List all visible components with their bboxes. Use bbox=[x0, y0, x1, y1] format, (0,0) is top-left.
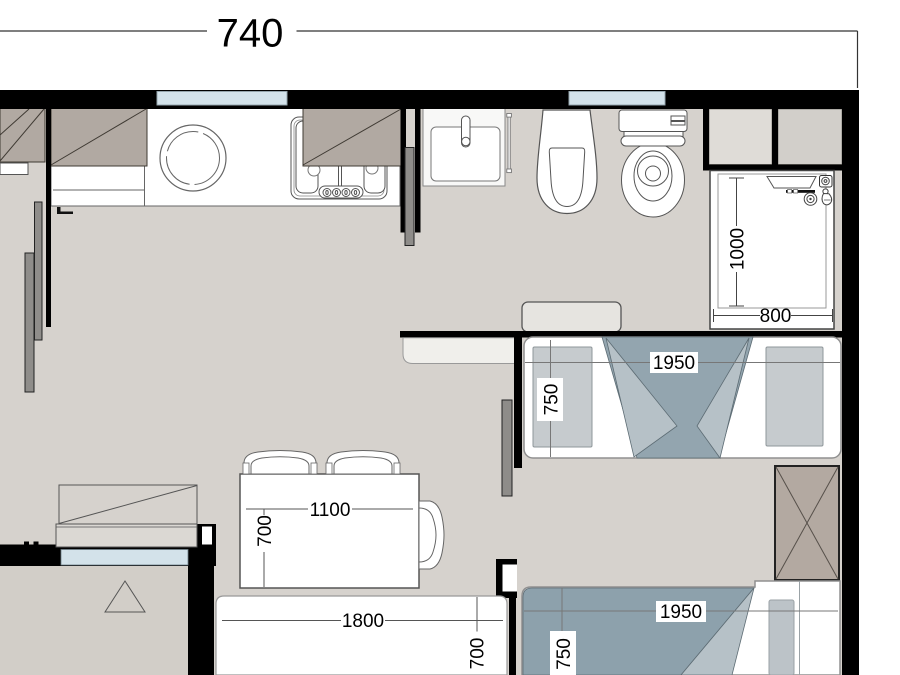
svg-text:1950: 1950 bbox=[653, 353, 695, 374]
svg-text:1100: 1100 bbox=[310, 500, 351, 521]
svg-text:1800: 1800 bbox=[342, 611, 384, 632]
svg-text:740: 740 bbox=[217, 12, 284, 56]
svg-text:1950: 1950 bbox=[660, 602, 702, 623]
svg-text:700: 700 bbox=[255, 515, 276, 547]
svg-text:1000: 1000 bbox=[728, 228, 749, 270]
svg-text:700: 700 bbox=[468, 638, 489, 670]
svg-text:750: 750 bbox=[542, 384, 563, 416]
svg-text:750: 750 bbox=[554, 638, 575, 670]
svg-text:800: 800 bbox=[760, 306, 792, 327]
